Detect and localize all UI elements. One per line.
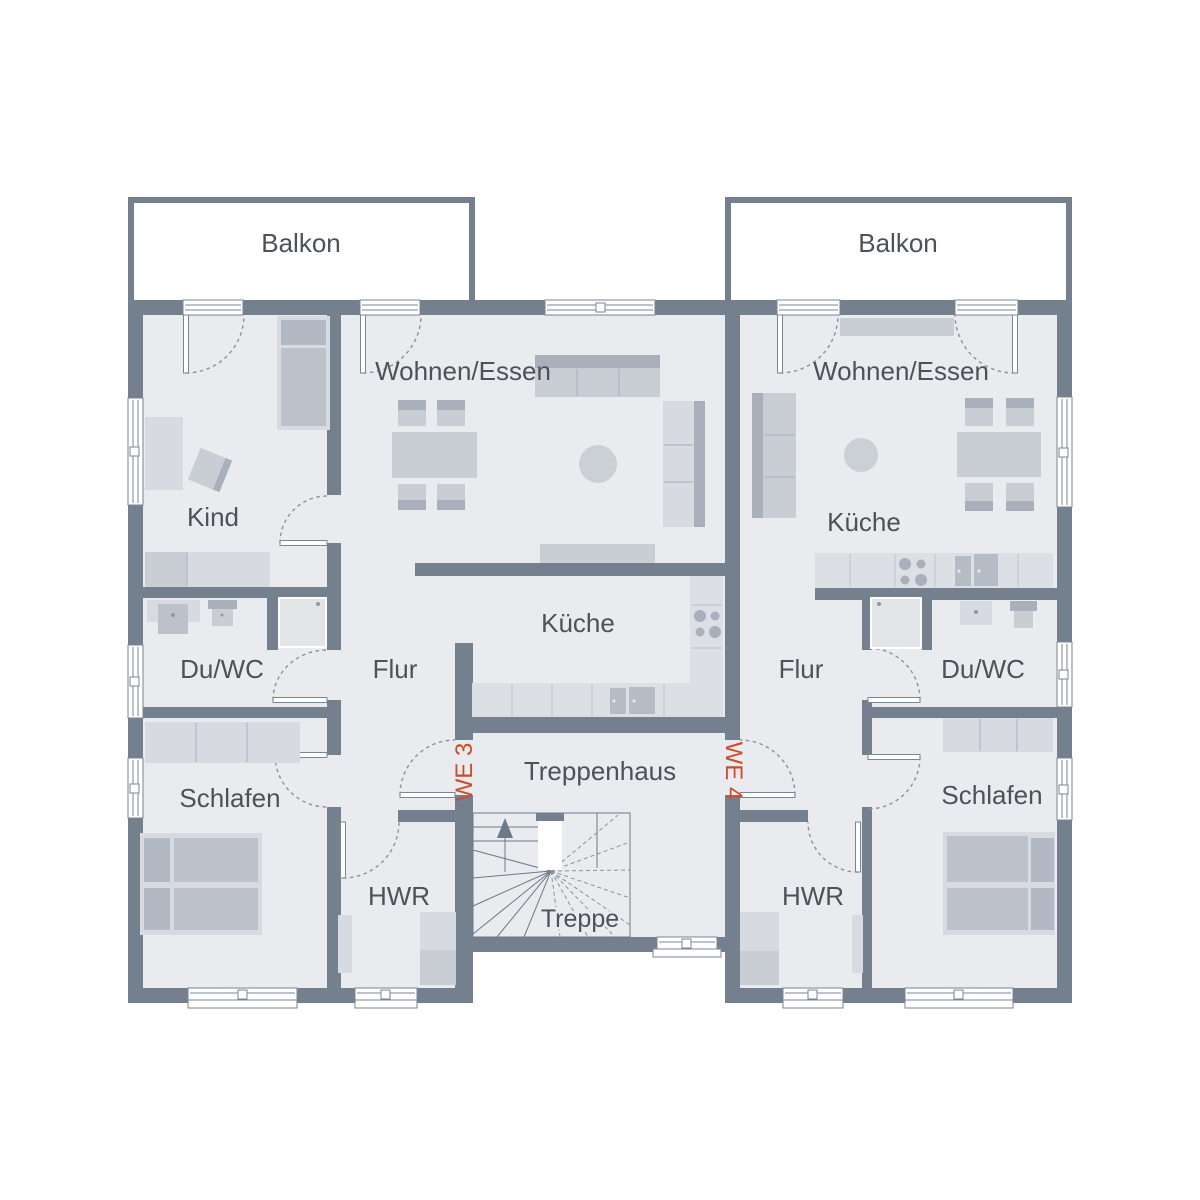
bedroom-left-bed (140, 833, 262, 935)
bedroom-right-wardrobe (943, 718, 1053, 752)
label-bath-left: Du/WC (180, 654, 264, 684)
window-left-bedroom (128, 758, 143, 818)
label-living-right: Wohnen/Essen (813, 356, 989, 386)
label-stairs: Treppe (541, 905, 619, 933)
label-kitchen-right: Küche (827, 507, 901, 537)
label-bath-right: Du/WC (941, 654, 1025, 684)
floor-plan-drawing: Balkon Balkon Wohnen/Essen Wohnen/Essen … (0, 0, 1200, 1200)
rug-right (844, 438, 878, 472)
sideboard-left (540, 544, 655, 563)
bath-right-washbasin (960, 601, 992, 625)
bath-left-shower (279, 598, 326, 647)
floor-plan-page: Balkon Balkon Wohnen/Essen Wohnen/Essen … (0, 0, 1200, 1200)
label-unit-we4: WE 4 (720, 742, 747, 801)
window-bottom-bedroom-left (188, 988, 297, 1008)
sofa-left (535, 355, 660, 397)
window-right-bedroom (1057, 758, 1072, 820)
label-stairwell: Treppenhaus (524, 756, 676, 786)
rug-left (579, 445, 617, 483)
shelf-left (663, 401, 705, 527)
window-left-bath (128, 645, 143, 718)
bath-right-shower (871, 598, 921, 648)
label-bedroom-left: Schlafen (179, 783, 280, 813)
kind-bed (277, 316, 330, 430)
bath-right-toilet (1010, 601, 1037, 628)
bedroom-left-wardrobe (145, 722, 300, 763)
kitchen-right-counter (815, 553, 1053, 588)
label-kitchen-left: Küche (541, 608, 615, 638)
window-top-center (545, 300, 655, 315)
window-right-living (1057, 397, 1072, 507)
bedroom-right-bed (943, 832, 1055, 935)
sideboard-right (840, 318, 954, 336)
label-hall-right: Flur (779, 654, 824, 684)
label-balcony-right: Balkon (858, 228, 938, 258)
window-bottom-utility-left (355, 988, 417, 1008)
label-utility-right: HWR (782, 881, 844, 911)
label-bedroom-right: Schlafen (941, 780, 1042, 810)
label-kids-room: Kind (187, 502, 239, 532)
window-right-bath (1057, 642, 1072, 707)
window-left-kind (128, 398, 143, 505)
kind-wardrobe (145, 552, 270, 587)
sofa-right (752, 393, 796, 518)
window-bottom-bedroom-right (905, 988, 1013, 1008)
window-stairwell (653, 937, 721, 957)
label-balcony-left: Balkon (261, 228, 341, 258)
label-living-left: Wohnen/Essen (375, 356, 551, 386)
label-unit-we3: WE 3 (451, 743, 478, 802)
bath-left-toilet (208, 600, 237, 626)
label-hall-left: Flur (373, 654, 418, 684)
label-utility-left: HWR (368, 881, 430, 911)
kind-desk (145, 417, 183, 490)
window-bottom-utility-right (783, 988, 843, 1008)
